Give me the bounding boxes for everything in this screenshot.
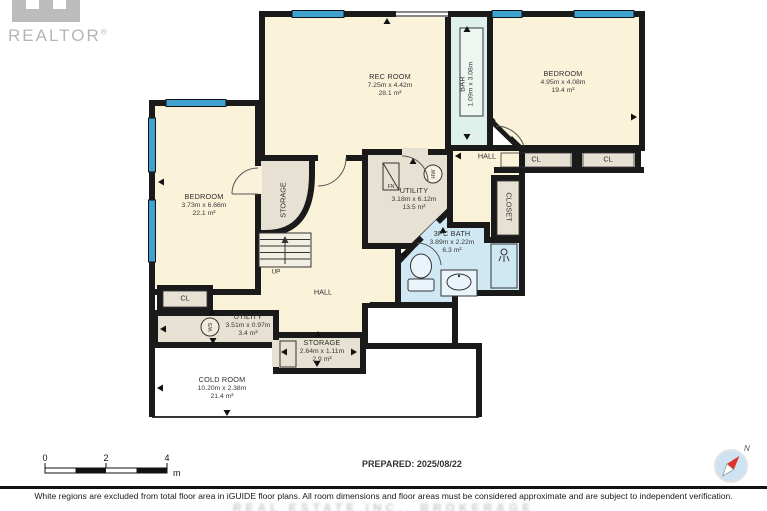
scale-tick-0: 0 <box>42 453 47 463</box>
room-dims: 2.64m x 1.11m <box>300 348 344 357</box>
room-name: BEDROOM <box>541 70 586 79</box>
window <box>166 100 226 107</box>
toilet-icon <box>408 254 434 291</box>
prepared-date: PREPARED: 2025/08/22 <box>362 459 462 469</box>
room-name: 3PC BATH <box>430 230 475 239</box>
room-area: 21.4 m² <box>198 393 247 402</box>
room-area: 22.1 m² <box>182 210 227 219</box>
window <box>492 11 522 18</box>
room-label-closet-2: CL <box>603 156 612 165</box>
floor-plan-page: FN HW WS <box>0 0 767 511</box>
realtor-word: REALTOR <box>8 26 101 45</box>
room-dims: 3.73m x 6.66m <box>182 202 227 211</box>
room-label-rec-room: REC ROOM 7.25m x 4.42m 28.1 m² <box>368 73 413 99</box>
room-dims: 3.51m x 0.97m <box>226 322 271 331</box>
room-area: 13.5 m² <box>392 204 437 213</box>
room-label-hall-upper: HALL <box>478 153 496 162</box>
scale-unit: m <box>173 468 181 478</box>
stairs-icon <box>259 233 311 267</box>
room-dims: 7.25m x 4.42m <box>368 82 413 91</box>
room-dims: 10.20m x 2.38m <box>198 385 247 394</box>
room-dims: 3.18m x 6.12m <box>392 196 437 205</box>
water-softener-icon: WS <box>201 318 219 336</box>
window <box>574 11 634 18</box>
room-area: 2.9 m² <box>300 356 344 365</box>
room-label-storage-stairs: STORAGE <box>280 182 289 218</box>
room-name: COLD ROOM <box>198 376 247 385</box>
rec-room-area <box>262 14 448 158</box>
room-name: BAR <box>458 62 467 107</box>
room-label-closet-1: CL <box>531 156 540 165</box>
sink-icon <box>441 270 477 296</box>
realtor-logo-text: REALTOR® <box>8 26 109 46</box>
compass-north-label: N <box>744 444 750 453</box>
room-label-bedroom-left: BEDROOM 3.73m x 6.66m 22.1 m² <box>182 193 227 219</box>
room-area: 3.4 m² <box>226 330 271 339</box>
room-label-hall-lower: HALL <box>314 289 332 298</box>
room-label-utility-main: UTILITY 3.18m x 6.12m 13.5 m² <box>392 187 437 213</box>
disclaimer-text: White regions are excluded from total fl… <box>0 491 767 501</box>
room-dims: 4.95m x 4.08m <box>541 79 586 88</box>
room-label-bath: 3PC BATH 3.89m x 2.22m 6.3 m² <box>430 230 475 256</box>
room-name: UTILITY <box>226 313 271 322</box>
stairs-up-label: UP <box>272 269 281 278</box>
room-label-cold-room: COLD ROOM 10.20m x 2.38m 21.4 m² <box>198 376 247 402</box>
room-label-bedroom-right: BEDROOM 4.95m x 4.08m 19.4 m² <box>541 70 586 96</box>
room-dims: 3.89m x 2.22m <box>430 239 475 248</box>
scale-tick-4: 4 <box>164 453 169 463</box>
room-name: STORAGE <box>300 339 344 348</box>
scale-bar: 0 2 4 m <box>42 453 180 478</box>
room-area: 6.3 m² <box>430 247 475 256</box>
registered-mark: ® <box>101 27 109 36</box>
realtor-logo: REALTOR® <box>8 0 118 56</box>
room-label-closet-left: CL <box>180 295 189 304</box>
room-label-storage-bottom: STORAGE 2.64m x 1.11m 2.9 m² <box>300 339 344 365</box>
room-name: UTILITY <box>392 187 437 196</box>
window <box>292 11 344 18</box>
hot-water-label: HW <box>431 169 437 179</box>
room-label-bar: BAR 1.09m x 3.08m <box>458 62 475 107</box>
room-label-utility-bottom: UTILITY 3.51m x 0.97m 3.4 m² <box>226 313 271 339</box>
room-name: BEDROOM <box>182 193 227 202</box>
brokerage-watermark: REAL ESTATE INC., BROKERAGE <box>233 501 534 511</box>
room-name: REC ROOM <box>368 73 413 82</box>
room-label-closet-hall: CLOSET <box>504 192 513 221</box>
window <box>149 200 156 262</box>
compass-icon: N <box>715 444 750 482</box>
window <box>149 118 156 172</box>
footer-divider <box>0 486 767 489</box>
scale-tick-2: 2 <box>103 453 108 463</box>
water-softener-label: WS <box>208 322 214 331</box>
room-dims: 1.09m x 3.08m <box>467 62 476 107</box>
realtor-logo-icon <box>12 0 80 22</box>
room-area: 28.1 m² <box>368 90 413 99</box>
opening-double-line <box>396 11 448 17</box>
room-area: 19.4 m² <box>541 87 586 96</box>
